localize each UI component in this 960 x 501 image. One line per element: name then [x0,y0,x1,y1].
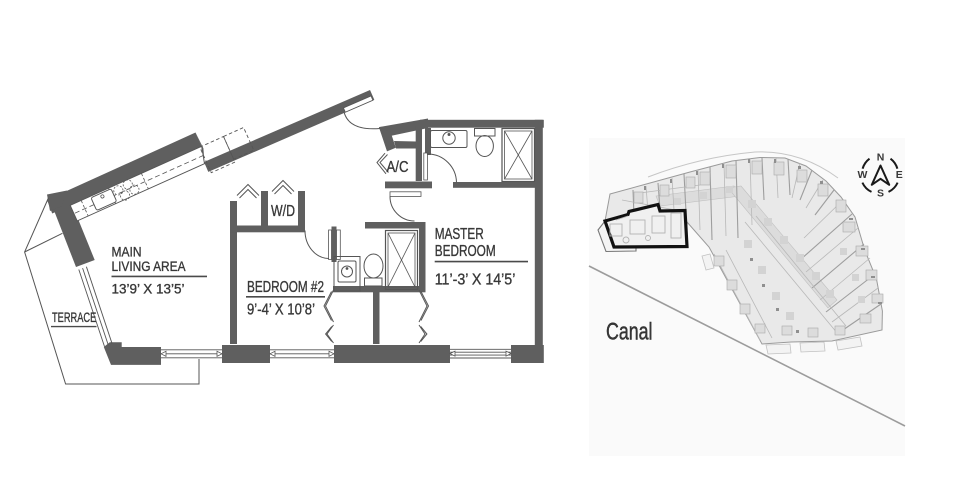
svg-text:N: N [877,152,885,164]
svg-text:11’-3’ X 14’5’: 11’-3’ X 14’5’ [435,272,516,289]
svg-text:W: W [858,169,868,181]
svg-text:A/C: A/C [387,159,409,176]
svg-text:TERRACE: TERRACE [52,309,96,325]
svg-text:BEDROOM #2: BEDROOM #2 [247,279,324,296]
svg-text:W/D: W/D [271,203,295,220]
svg-text:E: E [896,169,903,181]
svg-text:LIVING AREA: LIVING AREA [112,259,186,275]
svg-text:BEDROOM: BEDROOM [435,243,496,260]
svg-text:Canal: Canal [606,319,653,346]
svg-text:MASTER: MASTER [435,226,484,243]
svg-text:S: S [877,188,884,200]
svg-text:13’9’ X 13’5’: 13’9’ X 13’5’ [112,281,185,297]
svg-text:9’-4’ X 10’8’: 9’-4’ X 10’8’ [247,302,315,319]
